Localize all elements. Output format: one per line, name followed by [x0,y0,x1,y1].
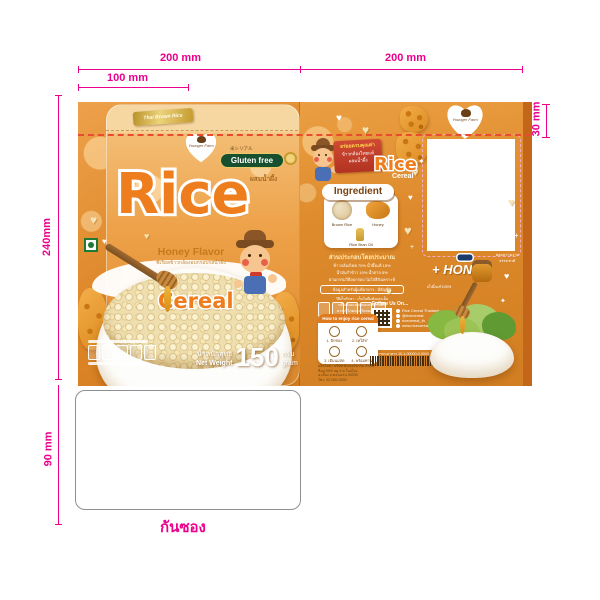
brown-rice-image [332,200,352,220]
brand-logo-text: Younger Farm [183,144,219,148]
heart-decoration: ♥ [90,214,97,226]
product-title-fill: Rice [116,162,250,227]
tick [522,66,523,73]
howto-step-icon [329,326,340,337]
japanese-text: 米シリアル [230,146,252,152]
back-logo-fill: Rice [374,154,417,175]
mascot-character [224,230,286,310]
honeycomb-image [400,106,428,132]
social-icon [396,319,400,323]
manufacturer-line: ผลิตโดย : บริษัท ยังเกอร์ฟาร์ม จำกัด [318,364,376,369]
howto-step-text: 3. เติมนมสด [324,359,344,363]
dim-line-flap-30 [546,104,547,137]
tick [78,84,79,91]
dim-line-height-240 [58,95,59,379]
net-weight-en: Net Weight [196,360,232,367]
tick [542,137,550,138]
mascot-hand [234,280,242,288]
sparkle-icon: + [410,244,414,251]
dim-front-half-width: 100 mm [107,72,148,84]
howto-step-icon [329,346,340,357]
tick [55,379,62,380]
mascot-eye [259,254,262,257]
ingredient-box: Brown Rice Honey Rice Bran Oil [324,194,398,248]
tick [55,524,62,525]
panel-seam [299,102,300,386]
mascot-eye [325,154,327,156]
tick [55,95,62,96]
heart-decoration: ♥ [508,198,515,209]
composition-line: ข้าวกล้องไทย 70% น้ำผึ้งแท้ 15% [314,262,410,269]
dim-line-height-90 [58,385,59,524]
certification-logo [456,253,474,262]
ingredient-label: Rice Bran Oil [342,242,380,247]
rice-bran-oil-image [356,228,364,241]
howto-step: 3. เติมนมสด [321,345,348,364]
dim-gusset-height: 90 mm [42,432,54,467]
heart-decoration: ♥ [336,114,342,124]
manufacturer-block: ผลิตโดย : บริษัท ยังเกอร์ฟาร์ม จำกัด ที่… [318,364,376,383]
back-logo-subtitle: Cereal [392,173,413,180]
heart-decoration: ♥ [404,224,412,237]
social-icon [396,314,400,318]
glue-flap [523,102,532,386]
howto-step: 1. ฉีกซอง [321,325,348,344]
fold-dash-line [78,134,531,136]
dim-line-100 [78,87,188,88]
mascot-body [244,276,266,294]
tick [78,66,79,73]
honey-image [366,201,390,219]
tick [300,66,301,73]
social-icon [396,324,400,328]
honey-drip [164,286,171,312]
net-weight-block: น้ำหนักสุทธิ Net Weight 150 กรัม gram [196,342,298,373]
honey-dipper [104,236,194,316]
howto-step-icon [356,326,367,337]
dipper-stick [104,243,164,284]
mascot-eye [248,254,251,257]
net-weight-value: 150 [235,342,278,373]
heart-decoration: ♥ [408,194,413,202]
sparkle-icon: + [514,232,519,240]
composition-line: น้ำมันรำข้าว 10% น้ำตาล 5% [314,269,410,276]
mascot-cheek [261,259,268,266]
howto-heading: How to enjoy rice cereal [318,314,378,323]
follow-heading: Follow Us On... [372,301,408,307]
packaging-dieline-canvas: 200 mm 200 mm 100 mm 240mm 90 mm 30 mm T… [0,0,600,600]
tick [542,104,550,105]
ingredient-label: Honey [364,222,392,227]
honey-drip [460,316,465,334]
manufacturer-line: โทร. 02-000-0000 [318,378,376,383]
back-panel: Younger Farm อร่อยครบคุณค่า ข้าวกล้องไทย… [300,102,523,386]
heart-decoration: ♥ [386,288,392,298]
howto-step-icon [356,346,367,357]
ingredient-label: Brown Rice [326,222,358,227]
composition-line: ผ่านกรรมวิธีอบกรอบ ไม่ใส่สีสังเคราะห์ [314,276,410,283]
net-weight-thai: น้ำหนักสุทธิ [196,349,232,360]
net-unit-thai: กรัม [282,349,298,360]
product-title: RiceRice [116,162,300,227]
gusset-label: กันซอง [160,515,206,539]
dim-panel-height: 240mm [41,218,53,256]
mascot-body [315,167,331,181]
mascot-cheek [327,157,332,162]
howto-step-text: 1. ฉีกซอง [326,339,342,343]
front-panel: Thai Brown Rice Younger Farm 米シリアル Glute… [78,102,300,386]
tick [188,84,189,91]
gusset-box [75,390,301,510]
composition-heading: ส่วนประกอบโดยประมาณ [314,252,410,262]
honey-dipper [448,280,508,340]
ingredient-heading: Ingredient [322,184,394,200]
dim-top-right-width: 200 mm [385,52,426,64]
mascot-cheek [314,157,319,162]
mascot-hand [268,274,277,283]
brand-logo-text: Younger Farm [444,118,486,122]
social-icon [396,309,400,313]
callout-right: หอมหวานจากธรรมชาติ [492,252,522,264]
vegetarian-mark [84,238,98,252]
dim-top-left-width: 200 mm [160,52,201,64]
logo-tree-icon [461,109,471,117]
mascot-cheek [242,259,249,266]
back-logo-title: RiceRice [374,154,523,175]
gda-nutrition-labels [88,340,156,365]
net-unit-en: gram [282,360,298,367]
mascot-eye [318,154,320,156]
honey-jar-image [472,260,492,282]
dim-top-flap-height: 30 mm [530,102,542,137]
logo-tree-icon [197,136,206,143]
